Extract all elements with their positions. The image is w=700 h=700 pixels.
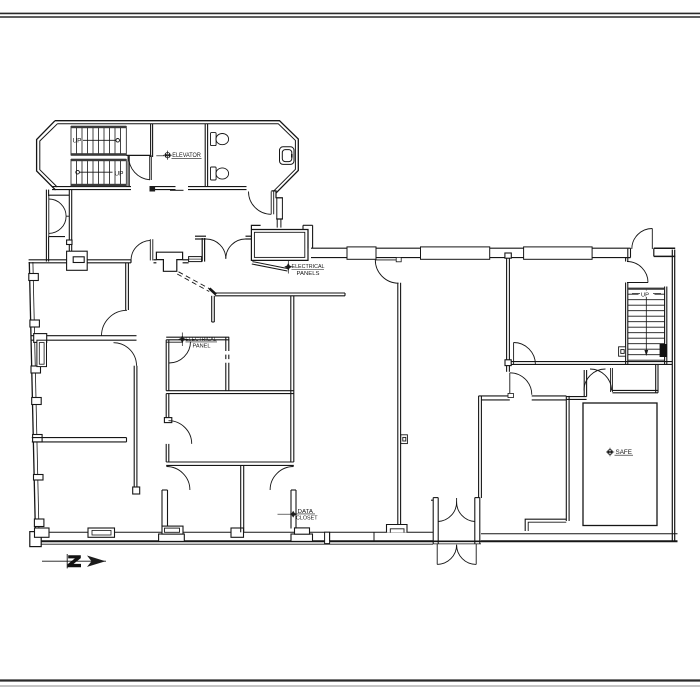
svg-text:PANELS: PANELS [297, 271, 320, 277]
svg-text:PANEL: PANEL [193, 343, 212, 349]
svg-text:UP: UP [641, 293, 649, 299]
svg-text:CLOSET: CLOSET [296, 516, 318, 522]
svg-text:UP: UP [115, 172, 124, 178]
svg-text:UP: UP [73, 139, 82, 145]
